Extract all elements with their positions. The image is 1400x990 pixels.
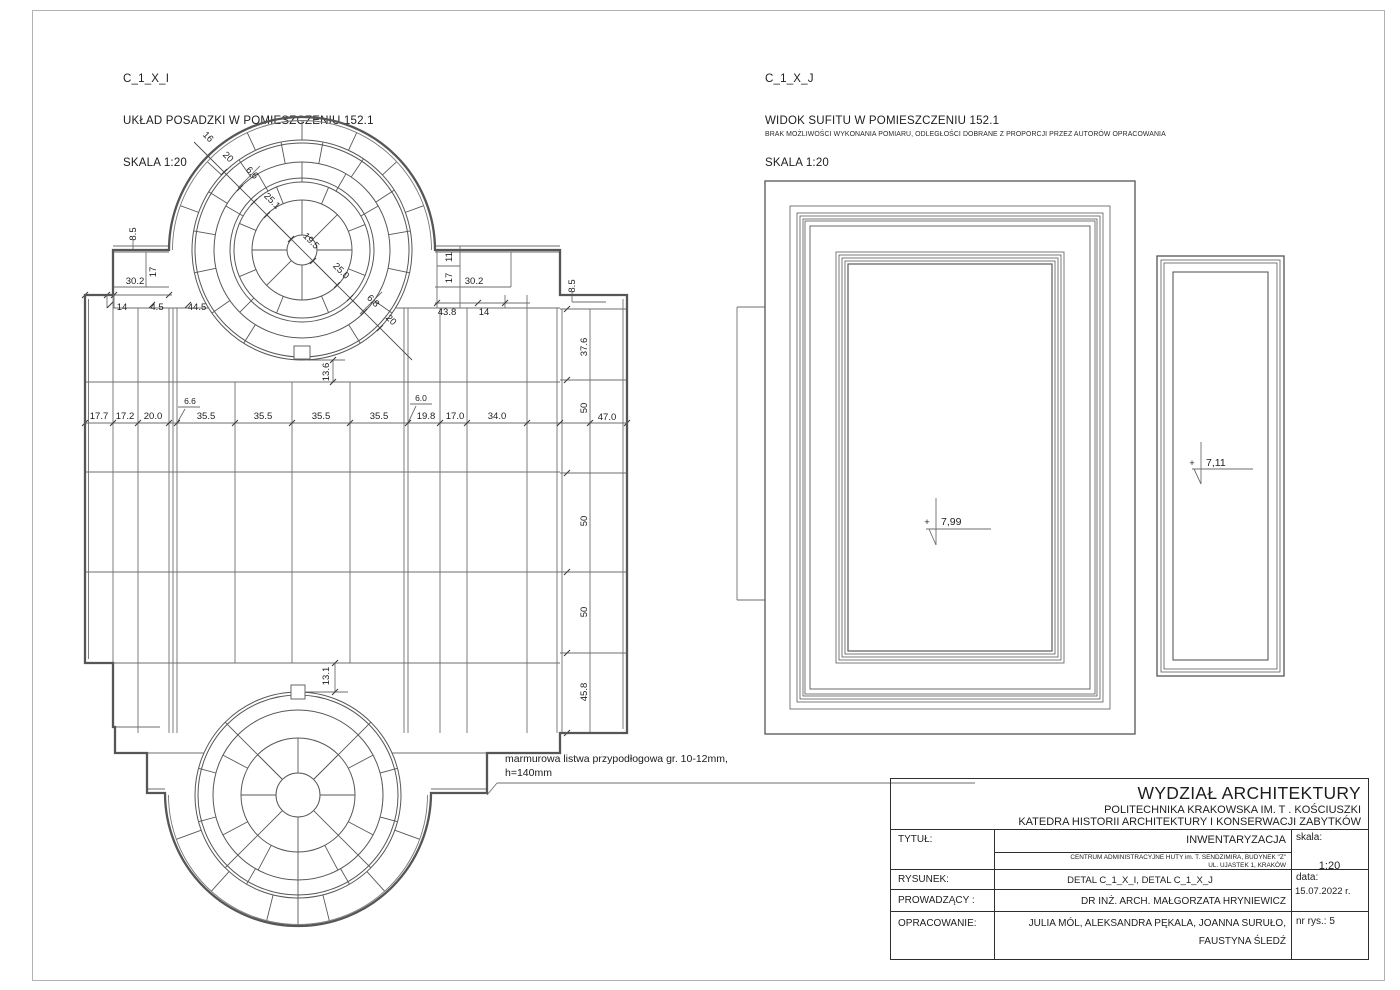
dim-label: 16	[200, 130, 215, 145]
drawing-label: RYSUNEK:	[898, 874, 949, 885]
dim-label: 17.0	[446, 411, 465, 422]
dim-label: 30.2	[126, 276, 145, 287]
dim-label: 6.6	[184, 396, 196, 406]
dim-label: 4.5	[150, 302, 163, 313]
dim-label: 19.8	[417, 411, 436, 422]
dim-label: 34.0	[488, 411, 507, 422]
drawing-sheet: C_1_X_I UKŁAD POSADZKI W POMIESZCZENIU 1…	[0, 0, 1400, 990]
apse-rings	[192, 140, 412, 898]
bottom-apse-keystone	[291, 685, 305, 699]
supervisor-value: DR INŻ. ARCH. MAŁGORZATA HRYNIEWICZ	[994, 896, 1286, 907]
dim-label: 6.0	[415, 393, 427, 403]
dim-label: 20	[220, 150, 235, 165]
dim-label: 47.0	[598, 412, 617, 423]
dim-label: 25.0	[330, 261, 351, 282]
row-dimensions: 37.6 50 50 50 45.8	[579, 338, 590, 702]
supervisor-label: PROWADZĄCY :	[898, 895, 975, 906]
dim-label: 37.6	[579, 338, 590, 357]
dim-label-gap-top: 13.6	[321, 363, 332, 382]
drawing-number: nr rys.: 5	[1296, 916, 1335, 927]
dim-label: 14	[479, 307, 490, 318]
floor-plan-linework	[85, 166, 1253, 795]
title-block-line	[891, 889, 1291, 890]
authors-value-line1: JULIA MÓL, ALEKSANDRA PĘKALA, JOANNA SUR…	[994, 918, 1286, 929]
title-block: WYDZIAŁ ARCHITEKTURY POLITECHNIKA KRAKOW…	[890, 778, 1369, 960]
apse-diagonal-dimension-line	[194, 142, 412, 360]
scale-value: 1:20	[1291, 860, 1368, 872]
level-mark-main: + 7,99	[924, 516, 961, 528]
dim-label: 20	[383, 313, 398, 328]
dim-label: 8.5	[128, 227, 139, 240]
dim-label: 50	[579, 403, 590, 414]
drawing-value: DETAL C_1_X_I, DETAL C_1_X_J	[994, 875, 1286, 886]
level-value-side: 7,11	[1206, 457, 1226, 469]
title-label: TYTUŁ:	[898, 834, 932, 845]
address-line2: UL. UJASTEK 1, KRAKÓW	[994, 862, 1286, 870]
title-block-line	[891, 829, 1368, 830]
date-value: 15.07.2022 r.	[1295, 886, 1350, 897]
plus-icon: +	[924, 517, 930, 528]
dim-label: 44.5	[188, 302, 207, 313]
university-name: POLITECHNIKA KRAKOWSKA IM. T . KOŚCIUSZK…	[891, 804, 1361, 816]
dim-label-gap-bottom: 13.1	[321, 667, 332, 686]
dim-label: 35.5	[370, 411, 389, 422]
dim-label: 35.5	[197, 411, 216, 422]
date-label: data:	[1296, 872, 1318, 883]
floor-plan-outline	[85, 117, 627, 926]
dimension-ticks	[82, 153, 630, 736]
title-block-line	[891, 911, 1368, 912]
address: CENTRUM ADMINISTRACYJNE HUTY im. T. SEND…	[994, 854, 1286, 870]
plus-icon: +	[1189, 458, 1195, 469]
address-line1: CENTRUM ADMINISTRACYJNE HUTY im. T. SEND…	[994, 854, 1286, 862]
dim-label: 30.2	[465, 276, 484, 287]
dim-label: 50	[579, 607, 590, 618]
dim-label: 35.5	[312, 411, 331, 422]
dim-label: 43.8	[438, 307, 457, 318]
level-value-main: 7,99	[941, 516, 962, 528]
dim-label: 6.6	[243, 165, 260, 182]
department-name: KATEDRA HISTORII ARCHITEKTURY I KONSERWA…	[891, 816, 1361, 828]
title-block-line	[1291, 829, 1292, 959]
authors-label: OPRACOWANIE:	[898, 918, 977, 929]
dim-label: 17	[148, 267, 159, 278]
dim-label: 35.5	[254, 411, 273, 422]
dim-label: 14	[117, 302, 128, 313]
dim-label: 45.8	[579, 683, 590, 702]
level-mark-side: + 7,11	[1189, 457, 1226, 469]
dim-label: 11	[444, 252, 455, 262]
dim-label: 17	[444, 273, 455, 284]
dim-label: 50	[579, 516, 590, 527]
dim-label: 8.5	[567, 279, 578, 292]
dim-label: 20.0	[144, 411, 163, 422]
dim-label: 17.7	[90, 411, 109, 422]
title-block-header: WYDZIAŁ ARCHITEKTURY POLITECHNIKA KRAKOW…	[891, 783, 1361, 828]
faculty-name: WYDZIAŁ ARCHITEKTURY	[891, 783, 1361, 804]
scale-label: skala:	[1296, 832, 1322, 843]
authors-value-line2: FAUSTYNA ŚLEDŹ	[994, 936, 1286, 947]
top-apse-keystone	[294, 346, 310, 359]
title-value: INWENTARYZACJA	[994, 834, 1286, 846]
title-block-line	[994, 852, 1291, 853]
dim-label: 17.2	[116, 411, 135, 422]
apse-diagonal-labels: 16 20 6.6 25.1 19.5 25.0 6.8 20	[200, 130, 398, 328]
